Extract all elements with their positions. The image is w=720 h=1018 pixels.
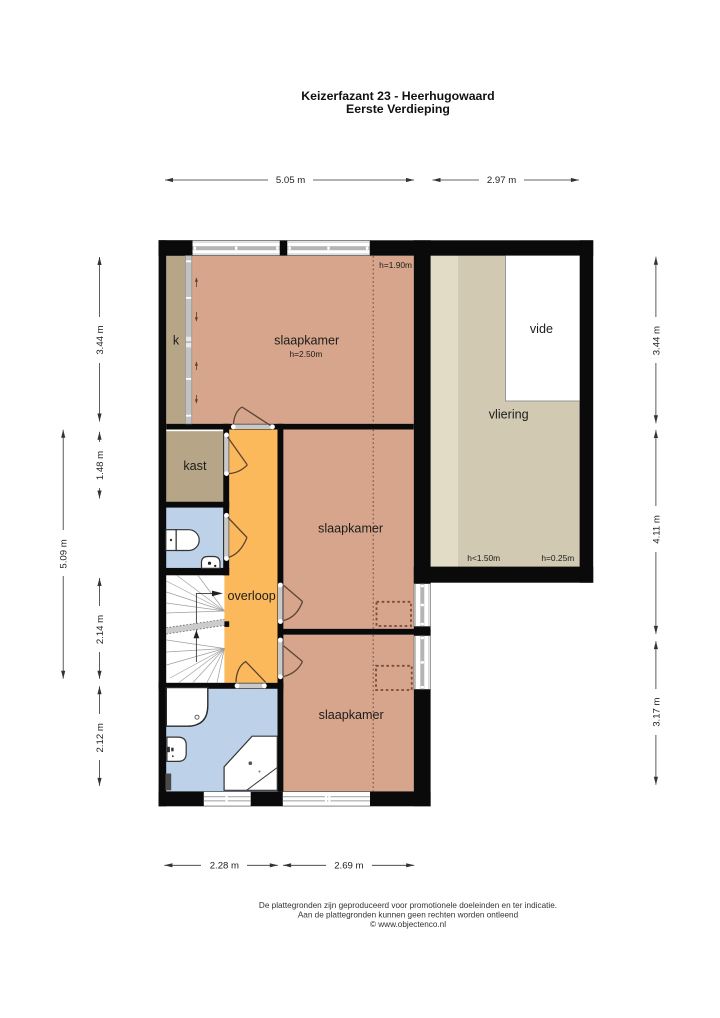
- svg-text:overloop: overloop: [227, 589, 275, 603]
- svg-text:h=0.25m: h=0.25m: [541, 553, 574, 563]
- svg-text:h<1.50m: h<1.50m: [467, 553, 500, 563]
- svg-text:kast: kast: [183, 459, 207, 473]
- svg-text:slaapkamer: slaapkamer: [318, 521, 383, 535]
- svg-text:slaapkamer: slaapkamer: [274, 333, 339, 347]
- svg-text:3.44 m: 3.44 m: [651, 326, 662, 355]
- svg-text:h=2.50m: h=2.50m: [289, 349, 322, 359]
- svg-text:3.17 m: 3.17 m: [651, 697, 662, 726]
- svg-text:Aan de plattegronden kunnen ge: Aan de plattegronden kunnen geen rechten…: [298, 911, 519, 920]
- svg-text:h=1.90m: h=1.90m: [379, 260, 412, 270]
- svg-text:2.28 m: 2.28 m: [210, 861, 239, 872]
- svg-text:Eerste Verdieping: Eerste Verdieping: [346, 102, 450, 116]
- svg-text:5.05 m: 5.05 m: [276, 175, 305, 186]
- svg-text:k: k: [173, 333, 180, 347]
- svg-text:2.12 m: 2.12 m: [95, 723, 106, 752]
- svg-text:© www.objectenco.nl: © www.objectenco.nl: [370, 920, 446, 929]
- svg-text:2.69 m: 2.69 m: [334, 861, 363, 872]
- svg-text:4.11 m: 4.11 m: [651, 515, 662, 544]
- svg-text:vliering: vliering: [489, 407, 529, 421]
- svg-text:De plattegronden zijn geproduc: De plattegronden zijn geproduceerd voor …: [259, 901, 557, 910]
- svg-text:1.48 m: 1.48 m: [95, 451, 106, 480]
- svg-text:slaapkamer: slaapkamer: [319, 708, 384, 722]
- svg-text:vide: vide: [530, 322, 553, 336]
- svg-text:5.09 m: 5.09 m: [59, 539, 70, 568]
- svg-text:3.44 m: 3.44 m: [95, 325, 106, 354]
- svg-text:2.14 m: 2.14 m: [95, 615, 106, 644]
- svg-text:2.97 m: 2.97 m: [487, 175, 516, 186]
